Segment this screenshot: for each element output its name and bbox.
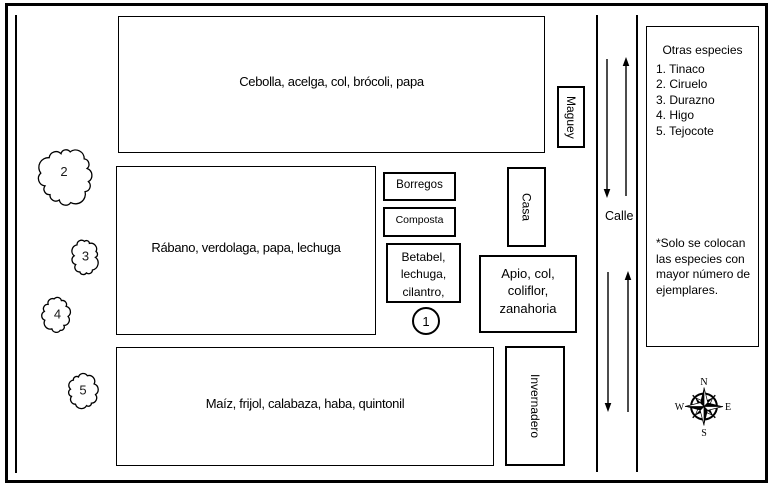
- svg-text:E: E: [725, 402, 731, 413]
- svg-text:W: W: [675, 402, 685, 413]
- svg-text:5: 5: [79, 383, 86, 398]
- svg-text:N: N: [700, 377, 707, 388]
- svg-text:S: S: [701, 428, 707, 439]
- svg-text:4: 4: [54, 307, 61, 322]
- svg-text:3: 3: [82, 249, 89, 264]
- svg-text:2: 2: [60, 164, 67, 179]
